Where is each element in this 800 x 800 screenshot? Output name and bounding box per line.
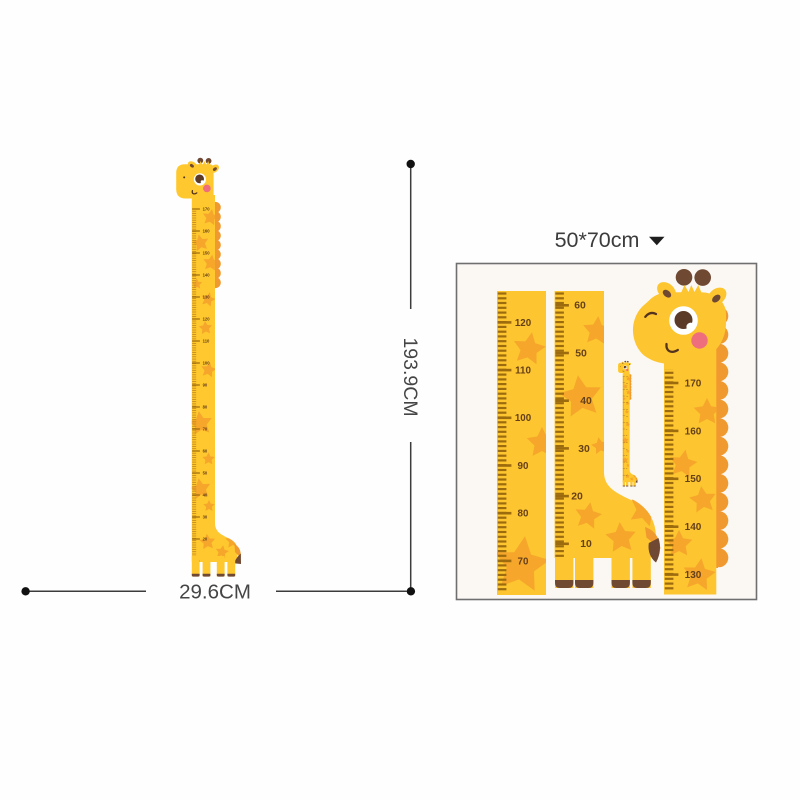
svg-text:30: 30	[578, 444, 590, 455]
svg-text:50*70cm: 50*70cm	[555, 228, 640, 252]
svg-text:170: 170	[685, 378, 702, 389]
svg-text:70: 70	[518, 556, 529, 567]
svg-text:50: 50	[575, 348, 587, 359]
svg-text:80: 80	[518, 509, 529, 520]
svg-text:150: 150	[685, 474, 702, 485]
svg-text:10: 10	[580, 539, 592, 550]
svg-text:160: 160	[685, 426, 702, 437]
svg-text:110: 110	[515, 366, 531, 377]
svg-text:40: 40	[580, 396, 592, 407]
svg-text:100: 100	[515, 413, 532, 424]
svg-text:130: 130	[685, 570, 702, 581]
svg-text:140: 140	[685, 522, 702, 533]
svg-text:120: 120	[515, 318, 532, 329]
svg-text:20: 20	[571, 492, 583, 503]
svg-text:60: 60	[574, 301, 586, 312]
svg-text:90: 90	[518, 461, 529, 472]
svg-text:29.6CM: 29.6CM	[179, 581, 251, 604]
svg-text:193.9CM: 193.9CM	[399, 337, 421, 416]
